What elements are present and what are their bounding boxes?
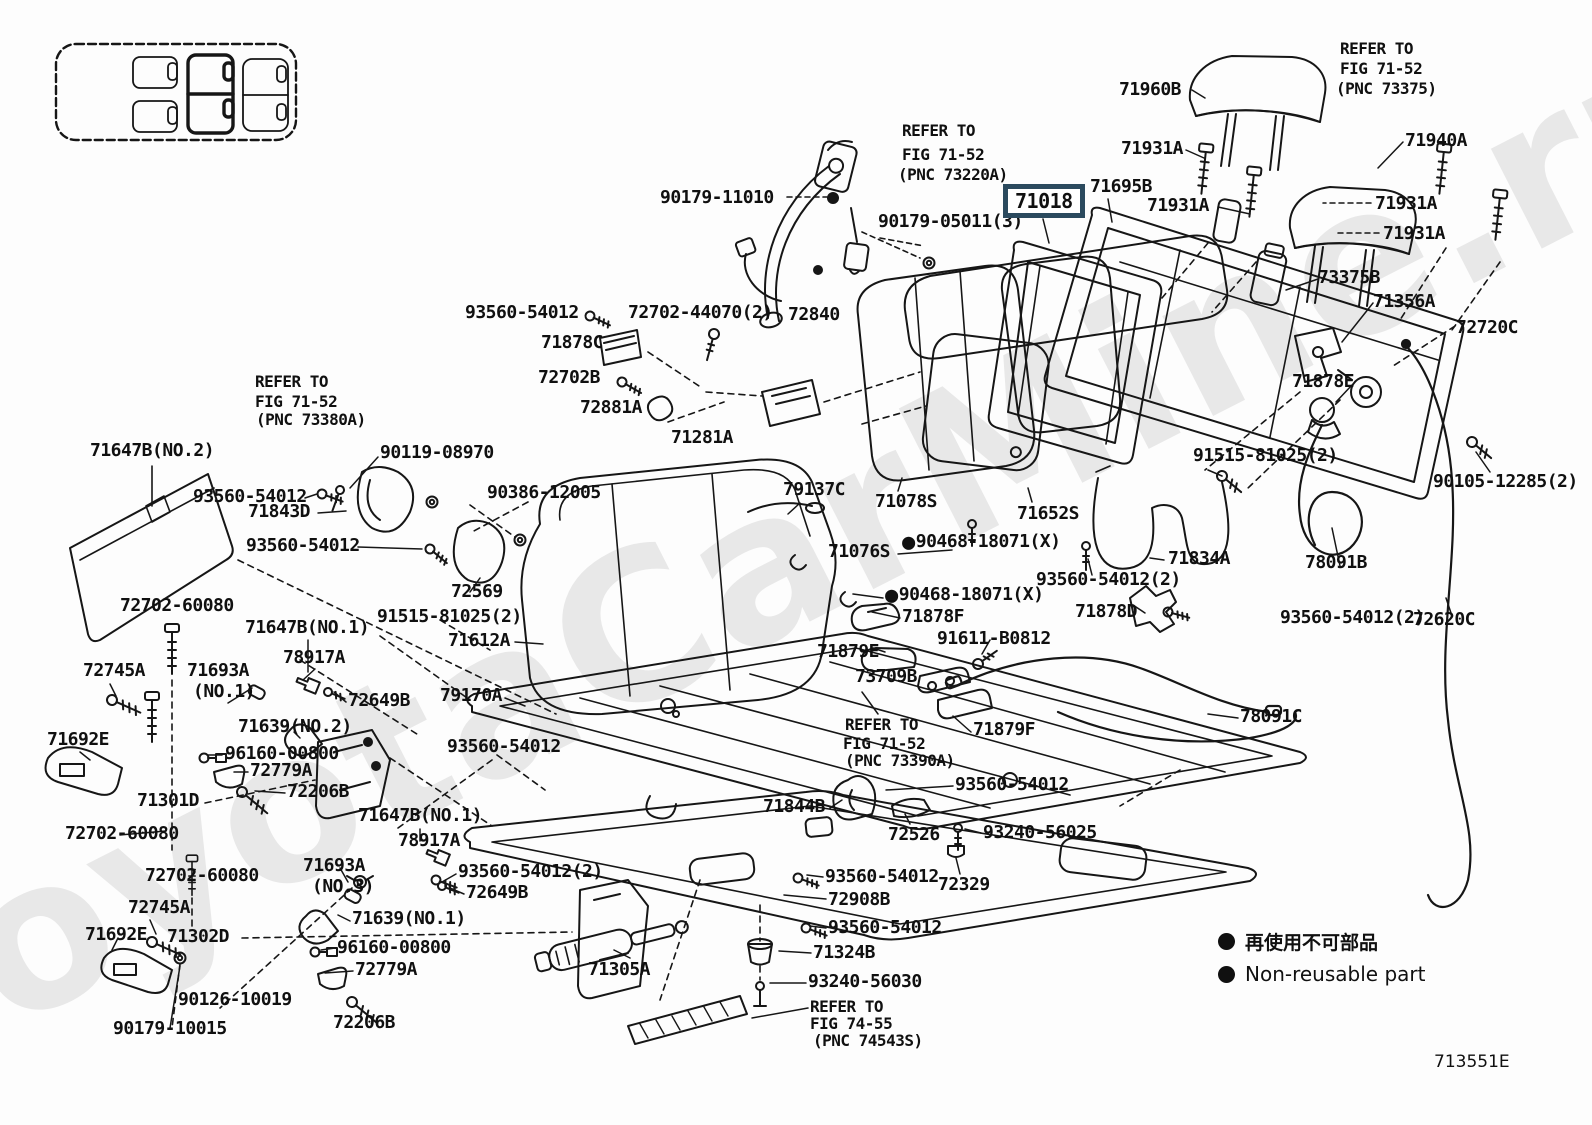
part-label: 93240-56030 bbox=[808, 972, 922, 992]
part-label: 90179-05011(3) bbox=[878, 212, 1023, 232]
part-label: 72779A bbox=[355, 960, 417, 980]
part-label: (PNC 73380A) bbox=[256, 411, 366, 429]
part-label: (PNC 73375) bbox=[1336, 80, 1436, 98]
part-label: 78917A bbox=[283, 648, 345, 668]
part-label: 71931A bbox=[1375, 194, 1437, 214]
part-label: 78917A bbox=[398, 831, 460, 851]
part-label: 73375B bbox=[1318, 268, 1380, 288]
part-label: REFER TO bbox=[810, 998, 883, 1016]
part-label: FIG 71-52 bbox=[255, 393, 337, 411]
part-label: 78091B bbox=[1305, 553, 1367, 573]
part-label: 71647B(NO.2) bbox=[90, 441, 214, 461]
part-label: 72745A bbox=[83, 661, 145, 681]
part-label: 71639(NO.2) bbox=[238, 717, 352, 737]
part-label: 71281A bbox=[671, 428, 733, 448]
part-label: 72702-60080 bbox=[120, 596, 234, 616]
part-label: 93560-54012 bbox=[465, 303, 579, 323]
part-label: REFER TO bbox=[845, 716, 918, 734]
part-label: 73709B bbox=[855, 667, 917, 687]
part-label: (PNC 73220A) bbox=[898, 166, 1008, 184]
non-reusable-dot-icon bbox=[1218, 933, 1235, 950]
legend-row-jp: 再使用不可部品 bbox=[1218, 928, 1425, 955]
part-label: 71960B bbox=[1119, 80, 1181, 100]
part-label: 93560-54012 bbox=[955, 775, 1069, 795]
legend-text-en: Non-reusable part bbox=[1245, 962, 1425, 986]
part-label: 93560-54012(2) bbox=[458, 862, 603, 882]
part-label: 71647B(NO.1) bbox=[245, 618, 369, 638]
part-label: 71878E bbox=[1292, 372, 1354, 392]
part-label: 96160-00800 bbox=[337, 938, 451, 958]
part-label: REFER TO bbox=[1340, 40, 1413, 58]
part-label: 72840 bbox=[788, 305, 840, 325]
legend: 再使用不可部品 Non-reusable part bbox=[1218, 928, 1425, 993]
part-label: 93560-54012 bbox=[825, 867, 939, 887]
part-label: 90119-08970 bbox=[380, 443, 494, 463]
part-label: 71302D bbox=[167, 927, 229, 947]
part-label: 71693A bbox=[187, 661, 249, 681]
part-label: 78091C bbox=[1240, 707, 1302, 727]
part-label: 72745A bbox=[128, 898, 190, 918]
part-label: 93560-54012 bbox=[246, 536, 360, 556]
non-reusable-dot-icon: ● bbox=[885, 583, 898, 608]
part-label: 72620C bbox=[1413, 610, 1475, 630]
non-reusable-dot-icon bbox=[1218, 966, 1235, 983]
part-label: 71834A bbox=[1168, 549, 1230, 569]
part-label: 71695B bbox=[1090, 177, 1152, 197]
part-label: (NO.3) bbox=[312, 877, 374, 897]
part-label: 71931A bbox=[1383, 224, 1445, 244]
part-label: 72720C bbox=[1456, 318, 1518, 338]
diagram-code: 713551E bbox=[1434, 1052, 1510, 1072]
part-label: 79170A bbox=[440, 686, 502, 706]
part-label: 79137C bbox=[783, 480, 845, 500]
part-label: 72702-44070(2) bbox=[628, 303, 773, 323]
part-label: 71652S bbox=[1017, 504, 1079, 524]
part-label: 91515-81025(2) bbox=[1193, 446, 1338, 466]
part-label: 72526 bbox=[888, 825, 940, 845]
part-label: 71931A bbox=[1121, 139, 1183, 159]
part-label: 90179-11010 bbox=[660, 188, 774, 208]
part-label: FIG 74-55 bbox=[810, 1015, 892, 1033]
part-label: REFER TO bbox=[255, 373, 328, 391]
part-label: 72206B bbox=[333, 1013, 395, 1033]
legend-text-jp: 再使用不可部品 bbox=[1245, 928, 1378, 955]
part-label: 71324B bbox=[813, 943, 875, 963]
part-label: 71612A bbox=[448, 631, 510, 651]
part-label: 72649B bbox=[466, 883, 528, 903]
part-label: (PNC 73390A) bbox=[845, 752, 955, 770]
part-label: 72881A bbox=[580, 398, 642, 418]
part-label: 91611-B0812 bbox=[937, 629, 1051, 649]
highlighted-part-label: 71018 bbox=[1003, 184, 1085, 218]
part-label: 90179-10015 bbox=[113, 1019, 227, 1039]
part-label: 72702-60080 bbox=[65, 824, 179, 844]
part-label: 71692E bbox=[85, 925, 147, 945]
part-label: 90386-12005 bbox=[487, 483, 601, 503]
part-label: 71931A bbox=[1147, 196, 1209, 216]
part-label: 72702B bbox=[538, 368, 600, 388]
part-label: 71078S bbox=[875, 492, 937, 512]
part-label: 93560-54012(2) bbox=[1280, 608, 1425, 628]
part-label: FIG 71-52 bbox=[843, 735, 925, 753]
part-label: 71692E bbox=[47, 730, 109, 750]
part-label: 93560-54012 bbox=[828, 918, 942, 938]
part-label: 72329 bbox=[938, 875, 990, 895]
part-label: 71878C bbox=[541, 333, 603, 353]
part-label: 71879E bbox=[817, 642, 879, 662]
part-label: 71301D bbox=[137, 791, 199, 811]
part-label: 93560-54012 bbox=[447, 737, 561, 757]
non-reusable-dot-icon: ● bbox=[902, 530, 915, 555]
part-label: FIG 71-52 bbox=[1340, 60, 1422, 78]
legend-row-en: Non-reusable part bbox=[1218, 962, 1425, 986]
part-label: 90126-10019 bbox=[178, 990, 292, 1010]
part-label: 72649B bbox=[348, 691, 410, 711]
part-label: REFER TO bbox=[902, 122, 975, 140]
part-label: ●90468-18071(X) bbox=[885, 584, 1043, 608]
part-label: 72206B bbox=[287, 782, 349, 802]
part-label: FIG 71-52 bbox=[902, 146, 984, 164]
part-label: 71843D bbox=[248, 502, 310, 522]
part-label: 71639(NO.1) bbox=[352, 909, 466, 929]
part-label: ●90468-18071(X) bbox=[902, 531, 1060, 555]
part-label: 93560-54012(2) bbox=[1036, 570, 1181, 590]
part-label: 71878F bbox=[902, 607, 964, 627]
part-label: (PNC 74543S) bbox=[813, 1032, 923, 1050]
part-label: 71356A bbox=[1373, 292, 1435, 312]
part-label: 71647B(NO.1) bbox=[358, 806, 482, 826]
part-label: 71940A bbox=[1405, 131, 1467, 151]
part-label: 71879F bbox=[973, 720, 1035, 740]
part-label: 71076S bbox=[828, 542, 890, 562]
part-label: 93240-56025 bbox=[983, 823, 1097, 843]
part-label: 71844B bbox=[763, 797, 825, 817]
part-label: 91515-81025(2) bbox=[377, 607, 522, 627]
part-label: 72779A bbox=[250, 761, 312, 781]
part-label: 72569 bbox=[451, 582, 503, 602]
part-label: (NO.1) bbox=[193, 682, 255, 702]
part-label: 90105-12285(2) bbox=[1433, 472, 1578, 492]
part-label: 71693A bbox=[303, 856, 365, 876]
part-label: 71878D bbox=[1075, 602, 1137, 622]
part-label: 72702-60080 bbox=[145, 866, 259, 886]
part-label: 71305A bbox=[588, 960, 650, 980]
part-label: 72908B bbox=[828, 890, 890, 910]
